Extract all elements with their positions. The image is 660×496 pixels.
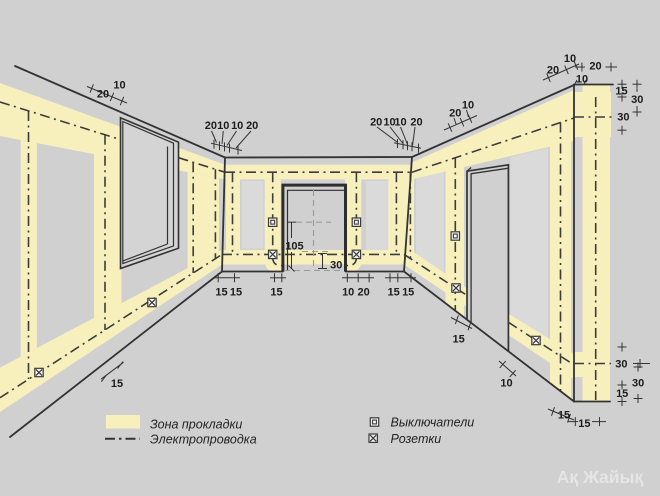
- svg-text:20: 20: [205, 120, 217, 132]
- svg-text:30: 30: [632, 377, 644, 389]
- svg-text:15: 15: [230, 287, 242, 299]
- svg-text:15: 15: [402, 287, 414, 299]
- svg-text:30: 30: [330, 259, 342, 271]
- svg-text:Выключатели: Выключатели: [391, 416, 475, 430]
- svg-text:30: 30: [615, 358, 627, 370]
- svg-text:20: 20: [410, 117, 422, 129]
- svg-text:10: 10: [564, 53, 576, 65]
- svg-text:Электропроводка: Электропроводка: [150, 433, 257, 447]
- svg-text:15: 15: [215, 287, 227, 299]
- svg-text:20: 20: [370, 117, 382, 129]
- svg-text:Ақ Жайық: Ақ Жайық: [557, 467, 644, 487]
- svg-text:15: 15: [558, 410, 570, 422]
- svg-text:30: 30: [631, 94, 643, 106]
- svg-text:20: 20: [246, 120, 258, 132]
- svg-text:10: 10: [576, 74, 588, 86]
- svg-text:Розетки: Розетки: [391, 432, 442, 446]
- svg-text:20: 20: [589, 61, 601, 73]
- svg-text:10: 10: [394, 117, 406, 129]
- svg-text:10: 10: [113, 80, 125, 92]
- svg-text:20: 20: [97, 89, 109, 101]
- svg-text:15: 15: [270, 287, 282, 299]
- svg-text:10: 10: [231, 120, 243, 132]
- svg-text:15: 15: [615, 86, 627, 98]
- svg-text:10: 10: [217, 120, 229, 132]
- svg-text:20: 20: [357, 287, 369, 299]
- svg-text:15: 15: [387, 287, 399, 299]
- svg-text:105: 105: [285, 240, 303, 252]
- svg-text:20: 20: [547, 65, 559, 77]
- svg-text:10: 10: [500, 377, 512, 389]
- svg-text:15: 15: [578, 418, 590, 430]
- svg-text:15: 15: [616, 388, 628, 400]
- svg-text:20: 20: [449, 108, 461, 120]
- svg-text:10: 10: [462, 100, 474, 112]
- svg-text:10: 10: [342, 287, 354, 299]
- svg-text:15: 15: [111, 378, 123, 390]
- svg-text:15: 15: [452, 334, 464, 346]
- svg-text:30: 30: [617, 112, 629, 124]
- svg-text:Зона прокладки: Зона прокладки: [150, 418, 242, 432]
